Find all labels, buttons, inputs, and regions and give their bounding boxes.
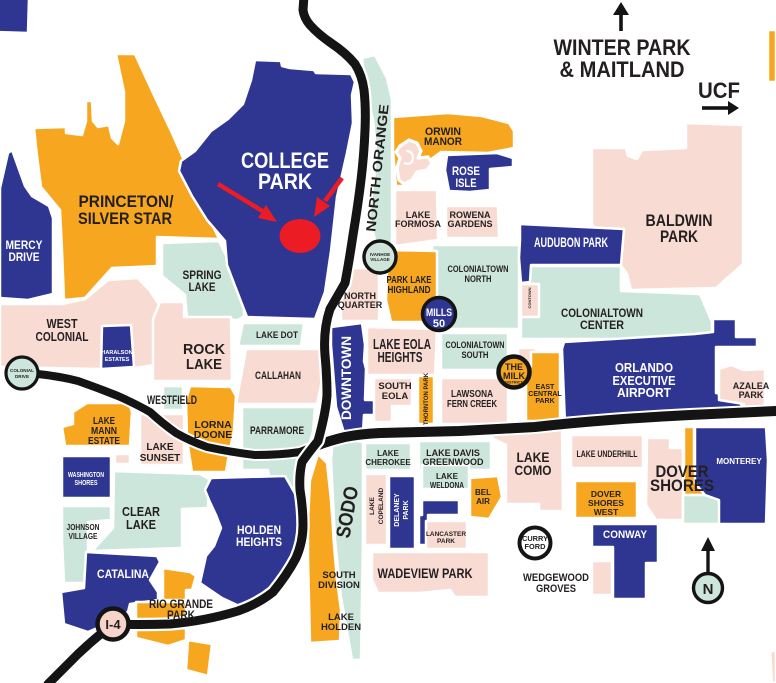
svg-text:PARK: PARK <box>739 390 764 400</box>
svg-text:NORTH: NORTH <box>465 274 492 285</box>
svg-text:LAKE: LAKE <box>189 280 216 294</box>
svg-text:FORMOSA: FORMOSA <box>395 219 441 229</box>
svg-text:WADEVIEW PARK: WADEVIEW PARK <box>378 565 473 581</box>
svg-text:JOHNSON: JOHNSON <box>67 523 100 532</box>
svg-text:PARK: PARK <box>167 610 196 622</box>
svg-text:DIVISION: DIVISION <box>318 580 360 591</box>
svg-text:PARK: PARK <box>258 169 312 194</box>
svg-text:DOWNTOWN: DOWNTOWN <box>339 336 354 420</box>
svg-text:& MAITLAND: & MAITLAND <box>560 57 685 82</box>
svg-text:DELANEY: DELANEY <box>394 493 401 527</box>
svg-text:SHORES: SHORES <box>75 480 98 487</box>
svg-text:QUARTER: QUARTER <box>338 300 383 310</box>
svg-text:SUNSET: SUNSET <box>140 453 181 464</box>
svg-text:COMO: COMO <box>515 462 552 478</box>
svg-text:LAKE: LAKE <box>146 442 174 453</box>
svg-text:AIR: AIR <box>476 497 490 506</box>
svg-text:I-4: I-4 <box>105 617 121 632</box>
svg-text:SOUTH: SOUTH <box>462 350 489 361</box>
svg-text:HARALSON: HARALSON <box>101 350 132 356</box>
svg-text:DRIVE: DRIVE <box>9 252 40 264</box>
svg-text:CONTOWN: CONTOWN <box>527 287 532 308</box>
svg-text:AUDUBON PARK: AUDUBON PARK <box>534 235 608 250</box>
svg-text:GREENWOOD: GREENWOOD <box>422 457 484 467</box>
svg-text:EAST: EAST <box>536 384 555 391</box>
svg-text:SILVER STAR: SILVER STAR <box>78 209 172 228</box>
svg-text:MANOR: MANOR <box>424 136 462 148</box>
svg-text:50: 50 <box>433 318 445 330</box>
svg-text:SHORES: SHORES <box>650 477 714 495</box>
svg-text:LAKE: LAKE <box>377 449 399 458</box>
svg-text:LAKE UNDERHILL: LAKE UNDERHILL <box>577 449 638 460</box>
svg-text:WEST: WEST <box>594 507 619 517</box>
svg-text:DOONE: DOONE <box>194 429 233 441</box>
svg-text:MERCY: MERCY <box>6 240 43 252</box>
svg-text:HEIGHTS: HEIGHTS <box>236 537 282 549</box>
svg-text:PARK: PARK <box>437 538 455 545</box>
svg-text:WESTFIELD: WESTFIELD <box>147 395 197 407</box>
svg-text:AIRPORT: AIRPORT <box>617 385 671 400</box>
svg-text:ISLE: ISLE <box>456 178 477 190</box>
svg-text:BEL: BEL <box>475 488 491 497</box>
svg-text:ROSE: ROSE <box>452 166 480 178</box>
svg-text:PARK: PARK <box>535 398 554 405</box>
svg-text:DRIVE: DRIVE <box>15 374 29 379</box>
svg-text:MONTEREY: MONTEREY <box>716 457 762 466</box>
svg-text:LAKE: LAKE <box>126 517 156 532</box>
svg-text:VILLAGE: VILLAGE <box>69 532 99 541</box>
svg-text:THORNTON PARK: THORNTON PARK <box>424 372 430 425</box>
svg-text:COPELAND: COPELAND <box>378 487 385 524</box>
svg-text:CATALINA: CATALINA <box>97 569 149 581</box>
svg-text:N: N <box>703 581 714 598</box>
svg-text:CONWAY: CONWAY <box>603 529 648 541</box>
svg-text:PARK: PARK <box>660 227 699 246</box>
svg-text:COLONIAL: COLONIAL <box>36 330 89 344</box>
svg-text:CALLAHAN: CALLAHAN <box>255 370 301 382</box>
svg-text:COLONIAL: COLONIAL <box>10 368 34 373</box>
svg-text:LANCASTER: LANCASTER <box>426 531 466 538</box>
svg-text:MILK: MILK <box>503 371 525 381</box>
svg-text:LAKE DOT: LAKE DOT <box>256 330 298 341</box>
svg-text:ESTATE: ESTATE <box>88 436 120 447</box>
svg-text:CENTER: CENTER <box>580 318 624 332</box>
svg-text:EOLA: EOLA <box>382 391 409 402</box>
svg-text:ESTATES: ESTATES <box>105 357 130 363</box>
svg-text:FORD: FORD <box>525 542 547 551</box>
svg-text:HOLDEN: HOLDEN <box>237 525 281 537</box>
svg-text:WELDONA: WELDONA <box>430 480 464 490</box>
svg-text:FERN CREEK: FERN CREEK <box>447 399 498 410</box>
svg-text:WASHINGTON: WASHINGTON <box>68 472 104 479</box>
svg-text:DISTRICT: DISTRICT <box>505 381 523 385</box>
svg-text:HIGHLAND: HIGHLAND <box>388 285 431 296</box>
svg-text:CHEROKEE: CHEROKEE <box>365 458 411 467</box>
svg-text:GARDENS: GARDENS <box>447 219 492 229</box>
svg-text:HEIGHTS: HEIGHTS <box>378 349 423 366</box>
svg-text:LAKE: LAKE <box>369 496 376 514</box>
svg-text:HOLDEN: HOLDEN <box>321 622 361 633</box>
svg-text:VILLAGE: VILLAGE <box>370 257 390 262</box>
svg-text:WEST: WEST <box>47 317 78 331</box>
svg-text:LAKE: LAKE <box>186 356 222 373</box>
svg-text:PARRAMORE: PARRAMORE <box>250 425 304 437</box>
svg-text:PARK: PARK <box>403 500 410 519</box>
svg-text:GROVES: GROVES <box>536 583 576 595</box>
svg-text:CENTRAL: CENTRAL <box>528 391 562 398</box>
svg-text:UCF: UCF <box>698 78 740 103</box>
